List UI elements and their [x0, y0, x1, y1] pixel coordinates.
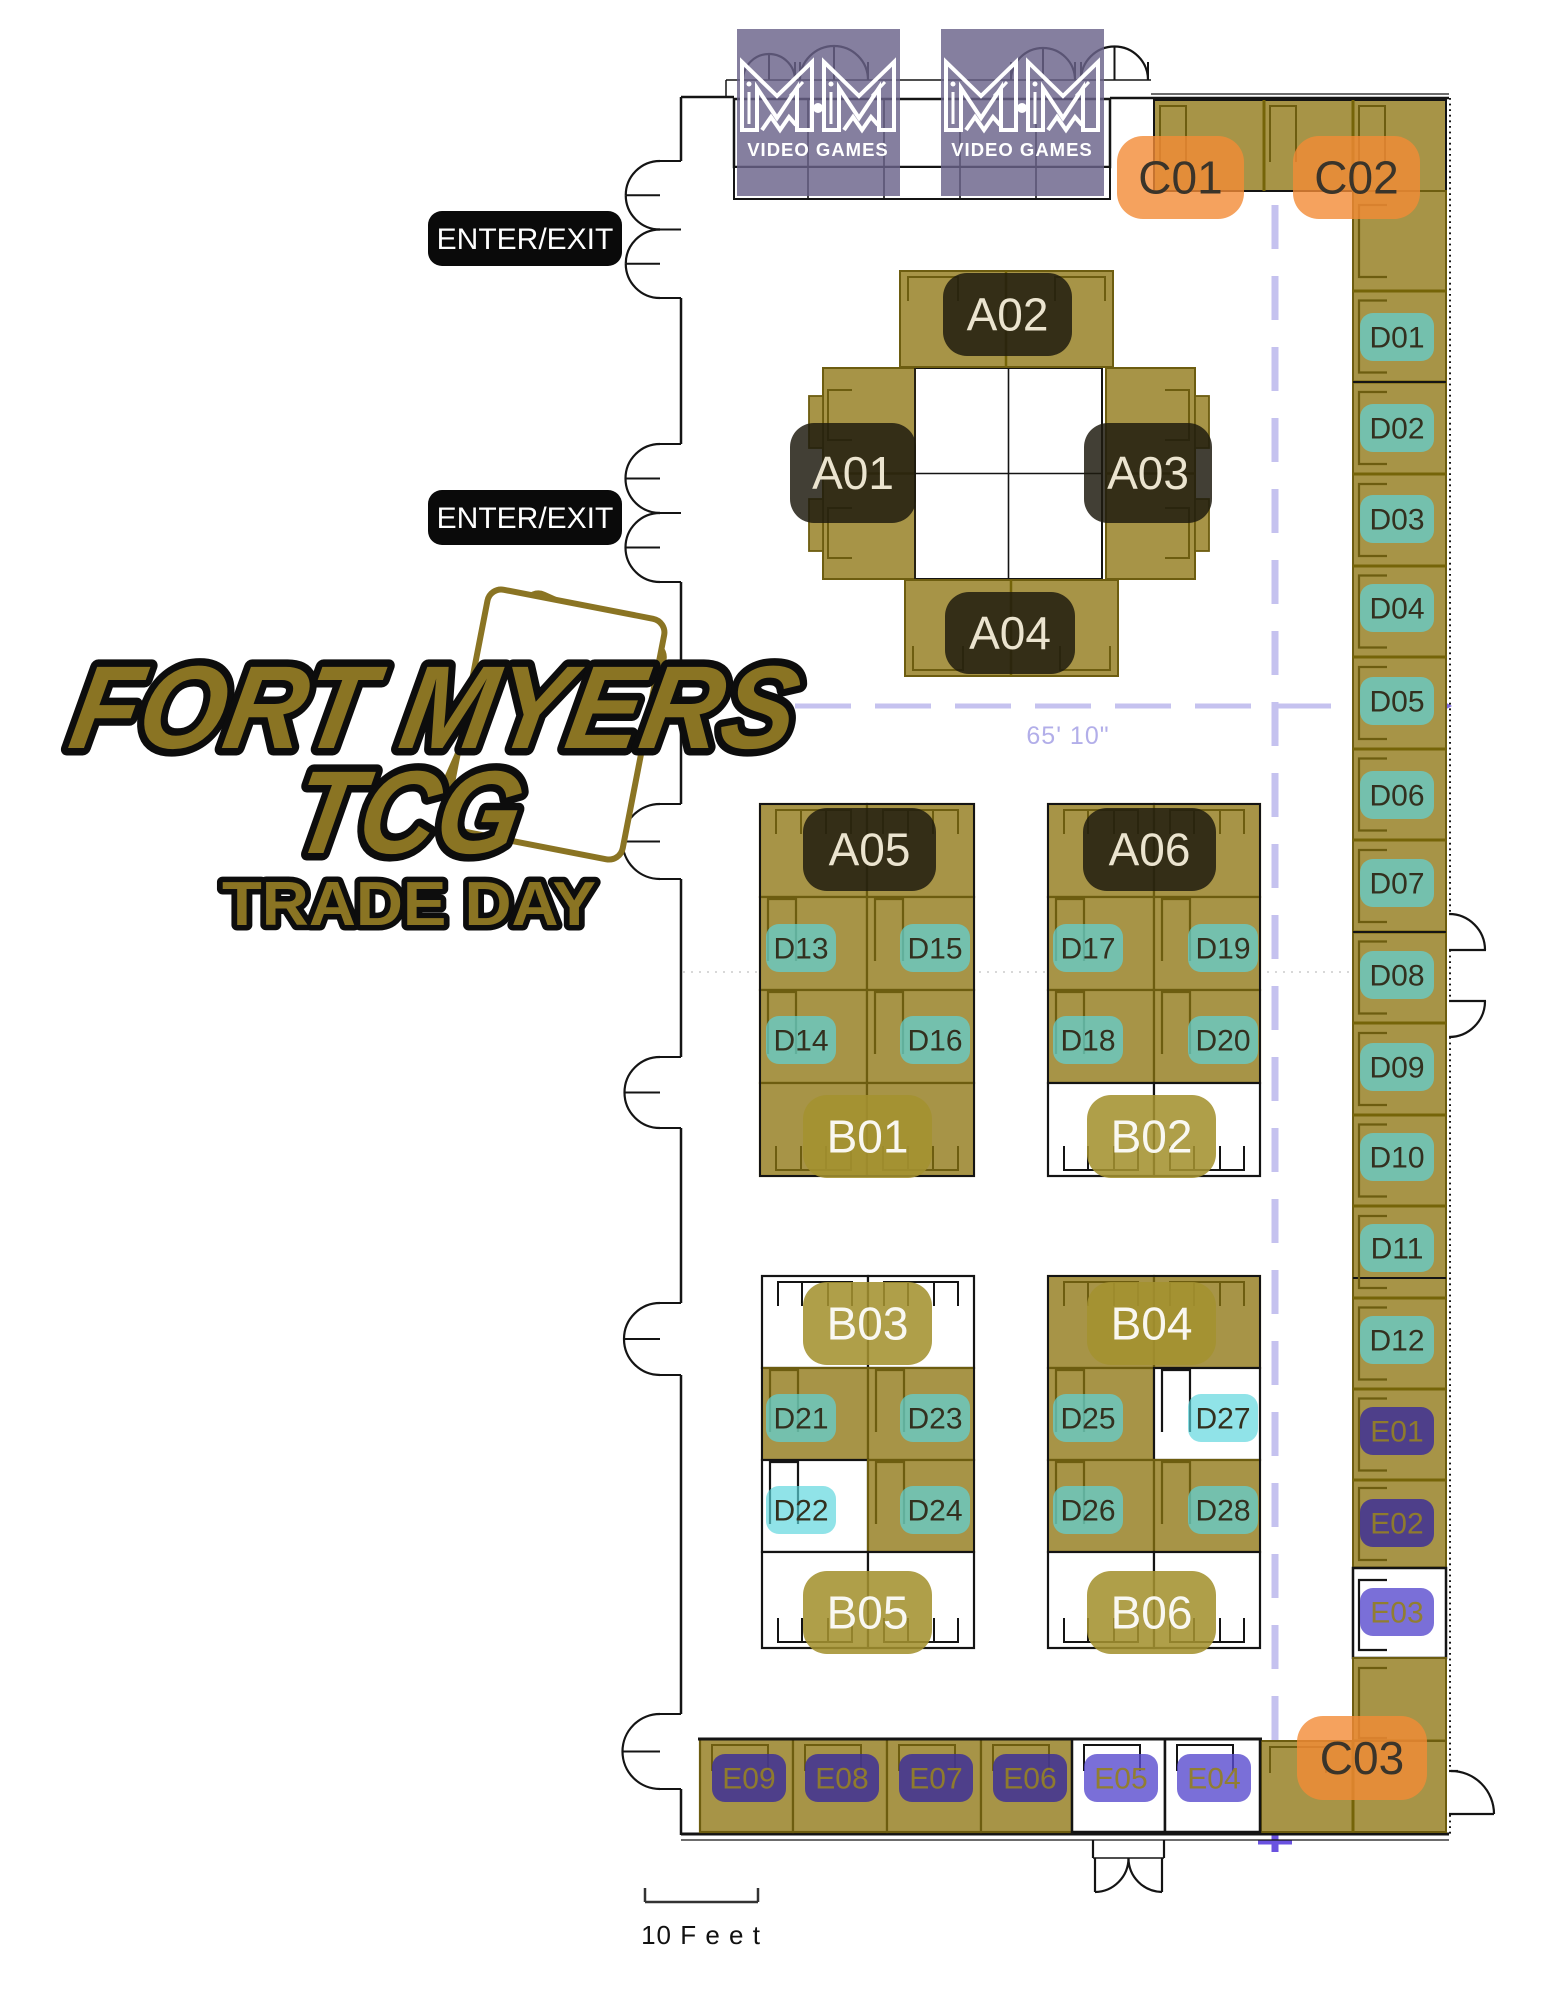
svg-text:C02: C02 — [1314, 151, 1398, 203]
svg-text:D12: D12 — [1369, 1324, 1424, 1357]
svg-text:E07: E07 — [909, 1762, 962, 1795]
svg-text:E02: E02 — [1370, 1507, 1423, 1540]
svg-text:D16: D16 — [907, 1024, 962, 1057]
svg-text:E09: E09 — [722, 1762, 775, 1795]
svg-text:D05: D05 — [1369, 685, 1424, 718]
svg-text:TRADE DAY: TRADE DAY — [222, 870, 596, 939]
svg-text:D11: D11 — [1371, 1232, 1424, 1265]
svg-text:D24: D24 — [907, 1494, 962, 1527]
svg-text:D26: D26 — [1060, 1494, 1115, 1527]
svg-text:A02: A02 — [967, 288, 1049, 340]
svg-text:B05: B05 — [827, 1586, 909, 1638]
svg-text:D06: D06 — [1369, 779, 1424, 812]
svg-text:A04: A04 — [969, 607, 1051, 659]
svg-text:B02: B02 — [1111, 1110, 1193, 1162]
svg-text:B03: B03 — [827, 1297, 909, 1349]
svg-text:D27: D27 — [1195, 1402, 1250, 1435]
svg-text:VIDEO GAMES: VIDEO GAMES — [747, 139, 889, 160]
svg-text:E03: E03 — [1370, 1596, 1423, 1629]
svg-text:10 F e e t: 10 F e e t — [641, 1920, 761, 1950]
svg-text:D22: D22 — [773, 1494, 828, 1527]
svg-text:B04: B04 — [1111, 1297, 1193, 1349]
svg-text:D01: D01 — [1369, 321, 1424, 354]
svg-text:D07: D07 — [1369, 867, 1424, 900]
svg-text:VIDEO GAMES: VIDEO GAMES — [951, 139, 1093, 160]
svg-text:D25: D25 — [1060, 1402, 1115, 1435]
svg-text:D02: D02 — [1369, 412, 1424, 445]
svg-text:B06: B06 — [1111, 1586, 1193, 1638]
svg-text:E08: E08 — [815, 1762, 868, 1795]
svg-text:D13: D13 — [773, 932, 828, 965]
svg-text:ENTER/EXIT: ENTER/EXIT — [437, 502, 614, 535]
svg-text:D09: D09 — [1369, 1051, 1424, 1084]
svg-text:C01: C01 — [1138, 151, 1222, 203]
svg-text:D14: D14 — [773, 1024, 828, 1057]
svg-text:D03: D03 — [1369, 503, 1424, 536]
svg-text:A05: A05 — [829, 823, 911, 875]
svg-text:C03: C03 — [1320, 1732, 1404, 1784]
svg-text:E04: E04 — [1187, 1762, 1240, 1795]
svg-text:E05: E05 — [1094, 1762, 1147, 1795]
svg-text:D19: D19 — [1195, 932, 1250, 965]
svg-text:TCG: TCG — [284, 747, 533, 879]
svg-text:D28: D28 — [1195, 1494, 1250, 1527]
svg-text:E01: E01 — [1370, 1415, 1423, 1448]
svg-text:B01: B01 — [827, 1110, 909, 1162]
svg-text:D20: D20 — [1195, 1024, 1250, 1057]
svg-text:D23: D23 — [907, 1402, 962, 1435]
svg-text:E06: E06 — [1003, 1762, 1056, 1795]
svg-text:D10: D10 — [1369, 1141, 1424, 1174]
svg-text:ENTER/EXIT: ENTER/EXIT — [437, 223, 614, 256]
svg-text:D08: D08 — [1369, 959, 1424, 992]
svg-text:A03: A03 — [1107, 447, 1189, 499]
svg-text:D15: D15 — [907, 932, 962, 965]
svg-text:D04: D04 — [1369, 592, 1424, 625]
svg-text:A06: A06 — [1109, 823, 1191, 875]
svg-text:D21: D21 — [773, 1402, 828, 1435]
svg-text:A01: A01 — [812, 447, 894, 499]
svg-text:D17: D17 — [1060, 932, 1115, 965]
svg-text:65' 10": 65' 10" — [1026, 722, 1109, 750]
svg-text:D18: D18 — [1060, 1024, 1115, 1057]
